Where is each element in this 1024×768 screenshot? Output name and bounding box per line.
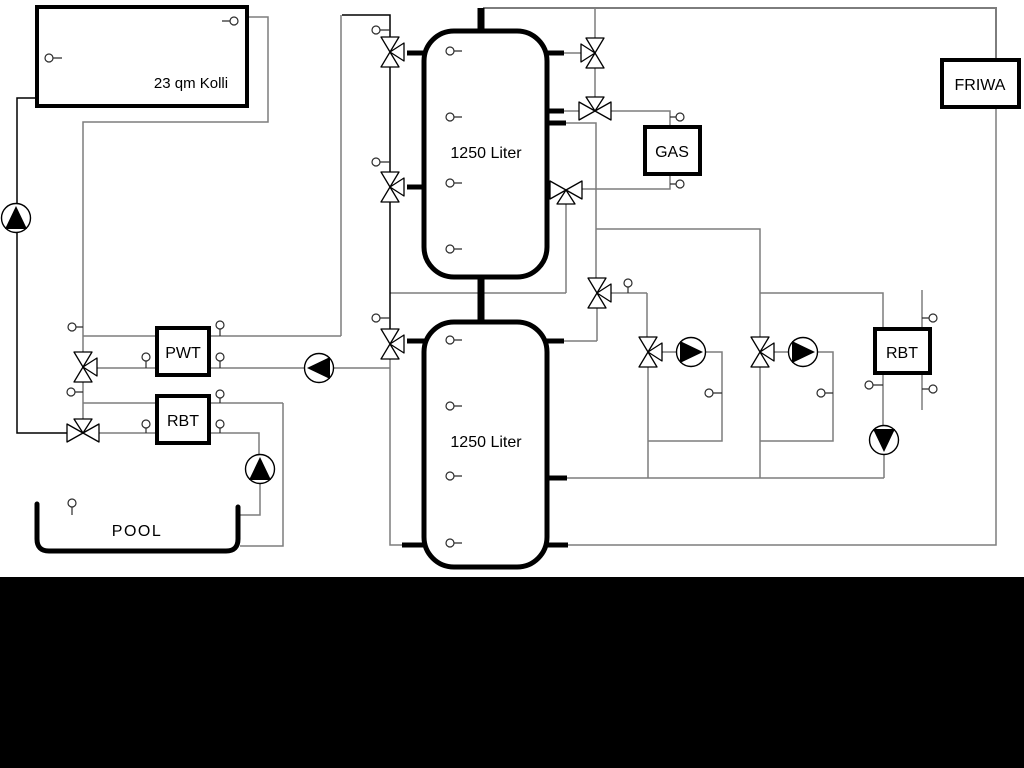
pump-icon: [677, 338, 706, 367]
pump-icon: [870, 426, 899, 455]
sensor-icon: [372, 314, 380, 322]
sensor-icon: [676, 180, 684, 188]
sensor-icon: [372, 158, 380, 166]
sensor-icon: [446, 402, 454, 410]
sensor-icon: [45, 54, 53, 62]
gas-label: GAS: [655, 144, 689, 161]
sensor-icon: [446, 245, 454, 253]
sensor-icon: [230, 17, 238, 25]
pump-icon: [2, 204, 31, 233]
sensor-icon: [216, 353, 224, 361]
collector-label: 23 qm Kolli: [154, 75, 228, 92]
sensor-icon: [446, 113, 454, 121]
pump-icon: [246, 455, 275, 484]
tank-top-label: 1250 Liter: [450, 145, 522, 162]
sensor-icon: [216, 420, 224, 428]
pwt-label: PWT: [165, 345, 201, 362]
pool-label: POOL: [112, 523, 162, 540]
sensor-icon: [142, 353, 150, 361]
pump-icon: [789, 338, 818, 367]
sensor-icon: [216, 321, 224, 329]
sensor-icon: [67, 388, 75, 396]
sensor-icon: [929, 314, 937, 322]
sensor-icon: [705, 389, 713, 397]
rbt-right-label: RBT: [886, 345, 918, 362]
sensor-icon: [446, 47, 454, 55]
tank-bottom-label: 1250 Liter: [450, 434, 522, 451]
bottom-black-bar: [0, 577, 1024, 768]
sensor-icon: [216, 390, 224, 398]
heating-schematic-diagram: 23 qm Kolli 1250 Liter 1250 Liter PWT RB…: [0, 0, 1024, 768]
friwa-label: FRIWA: [955, 77, 1006, 94]
sensor-icon: [68, 323, 76, 331]
sensor-icon: [446, 472, 454, 480]
schematic-page: 23 qm Kolli 1250 Liter 1250 Liter PWT RB…: [0, 0, 1024, 768]
sensor-icon: [446, 336, 454, 344]
sensor-icon: [929, 385, 937, 393]
sensor-icon: [865, 381, 873, 389]
sensor-icon: [676, 113, 684, 121]
sensor-icon: [372, 26, 380, 34]
rbt-left-label: RBT: [167, 413, 199, 430]
sensor-icon: [68, 499, 76, 507]
sensor-icon: [817, 389, 825, 397]
pump-icon: [305, 354, 334, 383]
sensor-icon: [624, 279, 632, 287]
sensor-icon: [446, 539, 454, 547]
sensor-icon: [142, 420, 150, 428]
sensor-icon: [446, 179, 454, 187]
